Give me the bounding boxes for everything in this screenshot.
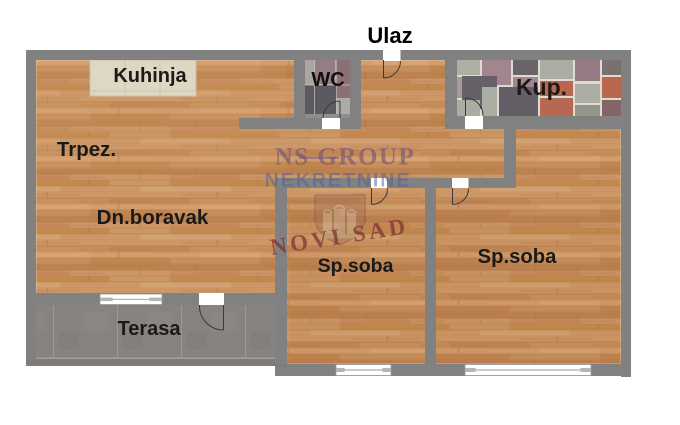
svg-text:NS GROUP: NS GROUP [275,144,415,171]
svg-text:Trpez.: Trpez. [57,138,116,161]
svg-text:Sp.soba: Sp.soba [318,255,394,277]
svg-text:Ulaz: Ulaz [367,23,412,48]
svg-text:Sp.soba: Sp.soba [478,246,558,268]
svg-text:NEKRETNINE: NEKRETNINE [265,170,412,192]
svg-text:WC: WC [311,69,344,91]
svg-text:Kup.: Kup. [516,74,567,100]
svg-text:Dn.boravak: Dn.boravak [97,206,209,229]
svg-text:Terasa: Terasa [117,318,181,340]
svg-text:Kuhinja: Kuhinja [113,65,187,87]
